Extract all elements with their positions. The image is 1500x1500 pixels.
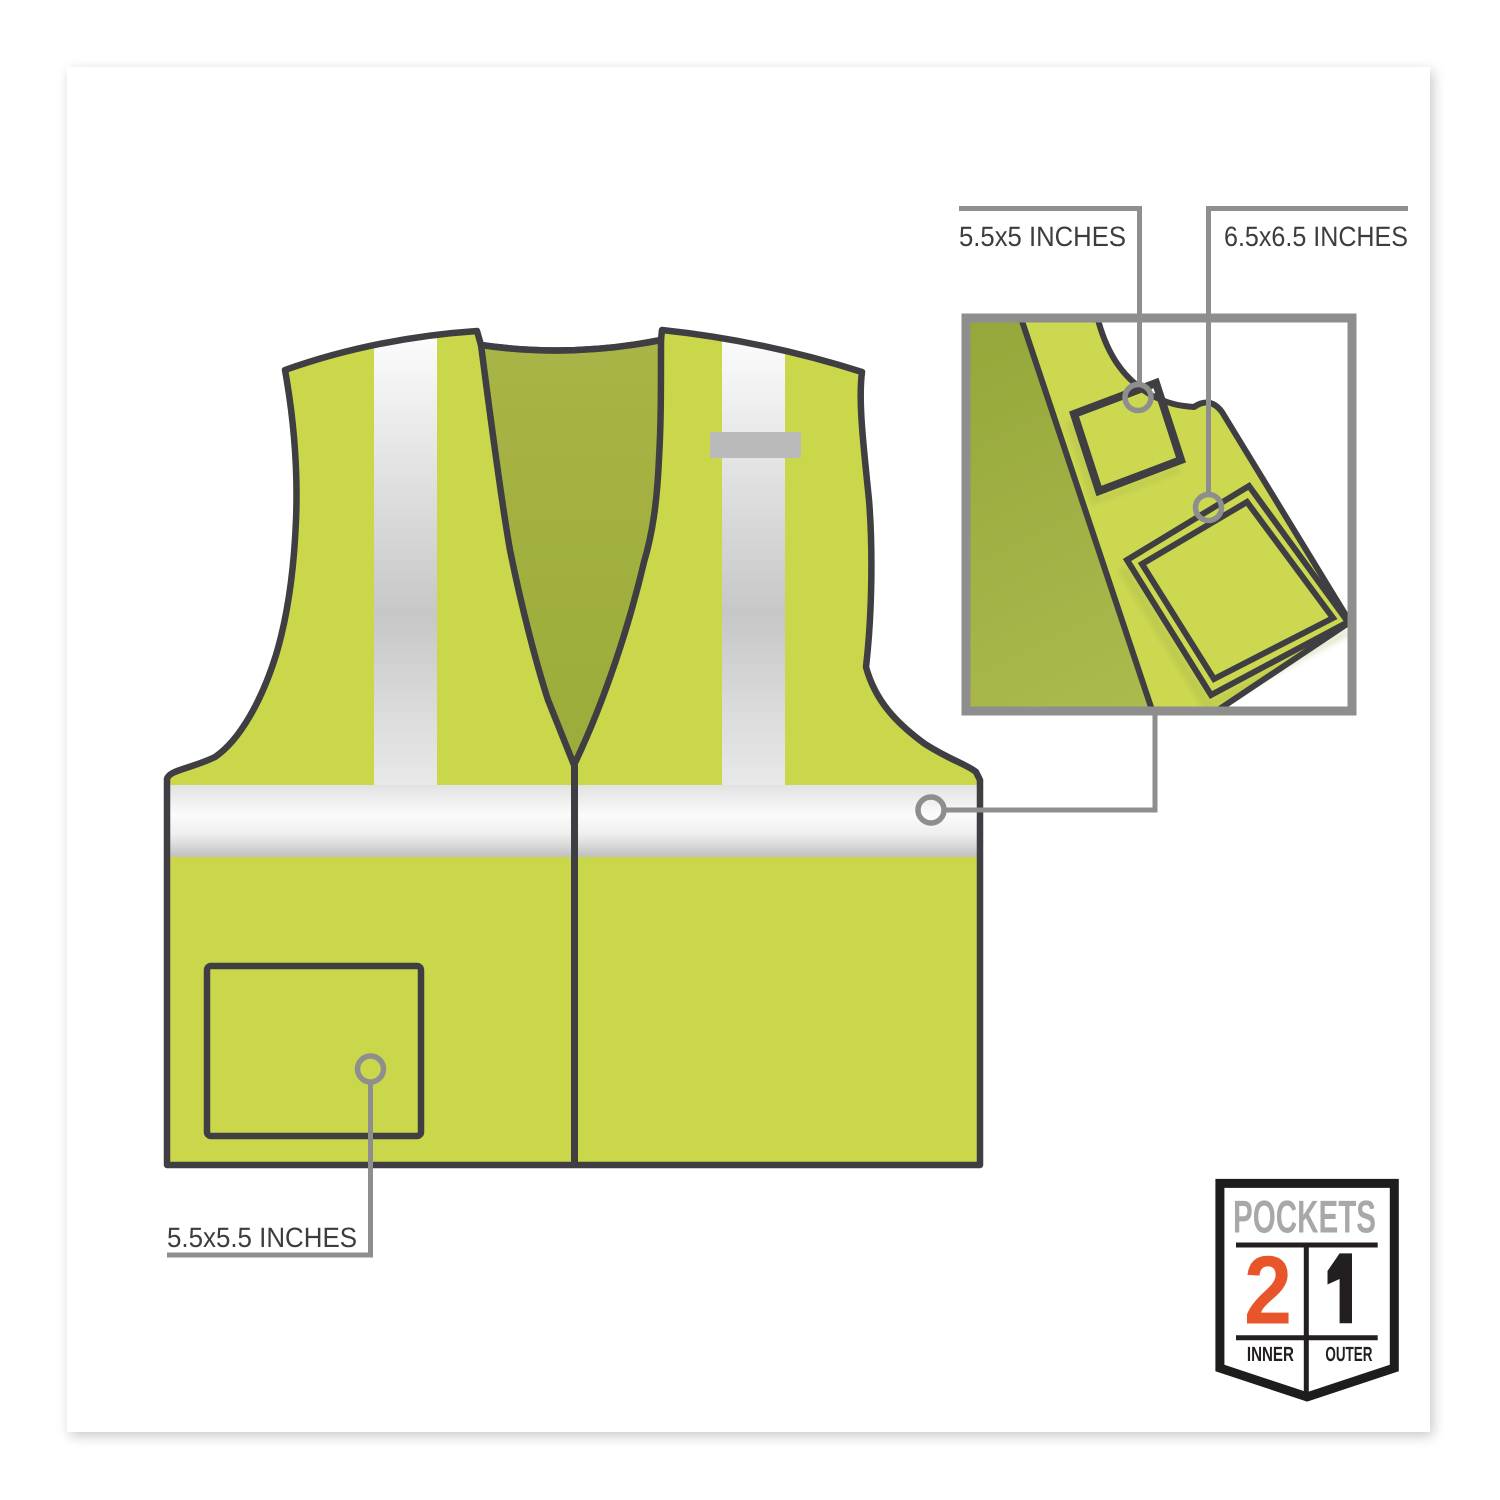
svg-text:5.5x5.5 INCHES: 5.5x5.5 INCHES <box>167 1222 357 1253</box>
svg-text:5.5x5 INCHES: 5.5x5 INCHES <box>959 221 1126 252</box>
svg-text:6.5x6.5 INCHES: 6.5x6.5 INCHES <box>1224 221 1408 252</box>
svg-text:2: 2 <box>1244 1235 1292 1344</box>
svg-text:INNER: INNER <box>1247 1343 1294 1366</box>
svg-text:OUTER: OUTER <box>1325 1343 1372 1366</box>
